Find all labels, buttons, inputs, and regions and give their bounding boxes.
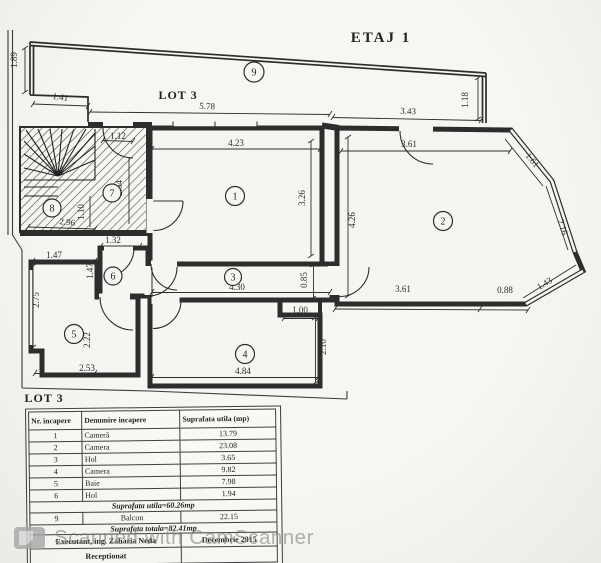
- dim-room5-left: 2.75: [31, 292, 41, 308]
- room-marker-7: 7: [103, 184, 121, 202]
- room-number-8: 8: [50, 204, 55, 215]
- dim-room4-notch: 1.00: [292, 305, 308, 315]
- room-marker-1: 1: [226, 187, 245, 206]
- dim-room6-left: 1.47: [85, 263, 95, 279]
- dim-room4-width: 4.84: [235, 366, 251, 376]
- room-marker-2: 2: [434, 212, 453, 231]
- table-header-area: Suprafata utila (mp): [180, 409, 276, 428]
- room-number-9: 9: [252, 68, 257, 79]
- dim-room5-bottom: 2.53: [79, 363, 95, 373]
- dim-stairs-inner: 1.10: [76, 204, 86, 220]
- dim-room1-height: 3.26: [297, 190, 307, 206]
- row-nr: 5: [29, 477, 82, 490]
- row-nr: 4: [29, 465, 82, 478]
- row-nr: 3: [29, 453, 82, 466]
- dim-entry-door: 1.12: [110, 131, 126, 141]
- balcony-outline: [30, 42, 486, 123]
- room-marker-4: 4: [236, 345, 255, 364]
- room-marker-3: 3: [225, 269, 242, 286]
- row-nr: 1: [29, 429, 82, 442]
- balcony-nr: 9: [30, 512, 83, 525]
- dim-stairs-bottom: 2.96: [59, 216, 76, 228]
- dim-room4-height: 2.10: [318, 339, 328, 355]
- table-header-nr: Nr. incapere: [29, 411, 82, 430]
- dim-room2-bottom-small: 0.88: [497, 285, 513, 295]
- room-number-1: 1: [233, 192, 238, 203]
- lot-label-bottom: LOT 3: [24, 391, 63, 405]
- scanned-floorplan-page: ETAJ 1 LOT 3 LOT 3 1.89 1.41 5.78 3.43 1…: [0, 0, 601, 563]
- watermark-text: Scanned with CamScanner: [54, 526, 314, 550]
- row-nr: 2: [29, 441, 82, 454]
- table-header-name: Denumire incapere: [82, 410, 180, 429]
- lot-label-top: LOT 3: [158, 88, 197, 102]
- floor-title: ETAJ 1: [351, 30, 411, 46]
- room-marker-8: 8: [43, 199, 61, 217]
- dim-room2-bottom: 3.61: [395, 284, 411, 294]
- room-number-4: 4: [243, 350, 248, 361]
- dim-balcony-step: 1.41: [52, 91, 69, 103]
- room-marker-5: 5: [65, 325, 84, 344]
- room-number-5: 5: [72, 330, 77, 341]
- scanner-watermark: Scanned with CamScanner: [14, 526, 314, 550]
- row-nr: 6: [30, 489, 83, 502]
- room-marker-6: 6: [104, 267, 122, 285]
- dim-balcony-left: 1.89: [9, 52, 19, 68]
- dim-hall-height: 0.85: [299, 272, 309, 288]
- camscanner-logo-icon: [14, 527, 45, 549]
- room-marker-9: 9: [244, 62, 264, 82]
- dim-room5-top: 1.47: [46, 250, 62, 260]
- room-number-7: 7: [110, 189, 115, 200]
- dim-room2-entry: 3.61: [401, 139, 417, 149]
- room-number-2: 2: [441, 217, 446, 228]
- dim-room6-top: 1.32: [105, 235, 121, 245]
- dim-balcony-right-height: 1.18: [460, 92, 470, 108]
- room-number-3: 3: [231, 273, 236, 284]
- dim-balcony-width: 5.78: [199, 101, 216, 112]
- dim-room1-width: 4.23: [228, 138, 244, 148]
- room-number-6: 6: [111, 272, 116, 283]
- dim-room2-left: 4.26: [347, 212, 357, 228]
- dim-balcony-right-width: 3.43: [400, 106, 417, 117]
